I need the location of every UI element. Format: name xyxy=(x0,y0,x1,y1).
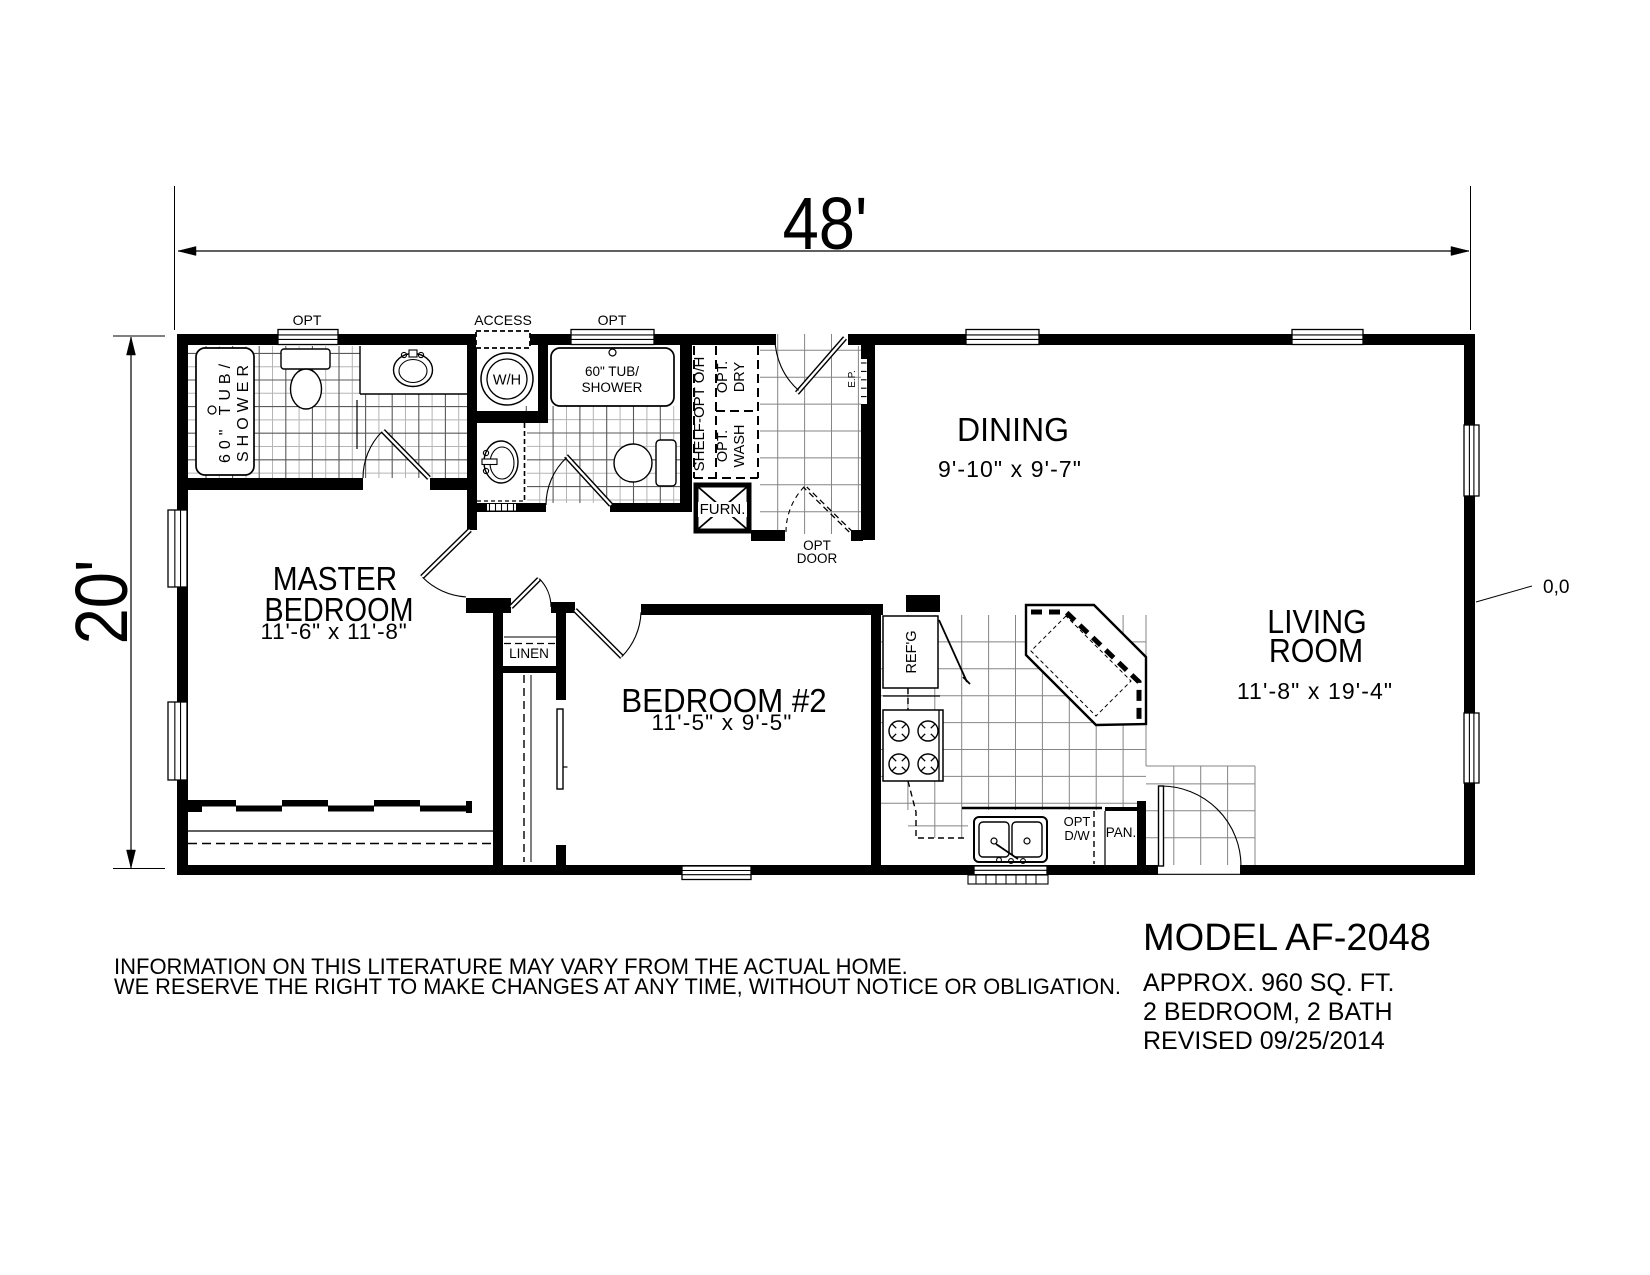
svg-text:2 BEDROOM, 2 BATH: 2 BEDROOM, 2 BATH xyxy=(1143,998,1393,1026)
svg-text:20': 20' xyxy=(60,560,143,645)
svg-text:APPROX. 960 SQ. FT.: APPROX. 960 SQ. FT. xyxy=(1143,969,1394,997)
svg-text:MODEL AF-2048: MODEL AF-2048 xyxy=(1143,917,1431,959)
svg-text:OPT: OPT xyxy=(293,312,322,328)
svg-text:ACCESS: ACCESS xyxy=(474,312,532,328)
svg-text:11'-8" x 19'-4": 11'-8" x 19'-4" xyxy=(1237,678,1393,704)
svg-text:SHOWER: SHOWER xyxy=(582,380,643,395)
svg-text:OPT.: OPT. xyxy=(715,361,731,393)
svg-text:11'-6" x 11'-8": 11'-6" x 11'-8" xyxy=(260,619,407,644)
svg-text:REF'G: REF'G xyxy=(904,630,920,673)
svg-text:FURN.: FURN. xyxy=(700,501,746,518)
svg-text:WE RESERVE THE RIGHT TO MAKE C: WE RESERVE THE RIGHT TO MAKE CHANGES AT … xyxy=(114,974,1121,999)
svg-text:48': 48' xyxy=(783,182,868,265)
svg-text:OPT: OPT xyxy=(598,312,627,328)
svg-text:DINING: DINING xyxy=(957,412,1069,449)
svg-text:OPT.: OPT. xyxy=(715,430,731,462)
svg-text:SHELF-OPT O/H: SHELF-OPT O/H xyxy=(691,357,708,472)
svg-text:0,0: 0,0 xyxy=(1543,577,1569,598)
svg-text:LINEN: LINEN xyxy=(509,646,549,661)
svg-text:OPT: OPT xyxy=(1064,814,1091,829)
svg-text:WASH: WASH xyxy=(732,425,748,468)
svg-text:SHOWER: SHOWER xyxy=(235,360,252,462)
svg-text:D/W: D/W xyxy=(1064,828,1090,843)
svg-text:ROOM: ROOM xyxy=(1269,632,1363,669)
svg-text:DRY: DRY xyxy=(732,361,748,392)
svg-text:REVISED 09/25/2014: REVISED 09/25/2014 xyxy=(1143,1027,1385,1055)
svg-text:DOOR: DOOR xyxy=(797,551,838,566)
svg-text:11'-5" x 9'-5": 11'-5" x 9'-5" xyxy=(651,710,792,735)
svg-text:9'-10" x 9'-7": 9'-10" x 9'-7" xyxy=(938,456,1082,482)
svg-text:60" TUB/: 60" TUB/ xyxy=(585,364,639,379)
svg-text:60" TUB/: 60" TUB/ xyxy=(217,359,234,463)
svg-text:E.P.: E.P. xyxy=(847,370,858,388)
svg-text:W/H: W/H xyxy=(493,373,521,389)
svg-text:PAN.: PAN. xyxy=(1106,825,1137,840)
